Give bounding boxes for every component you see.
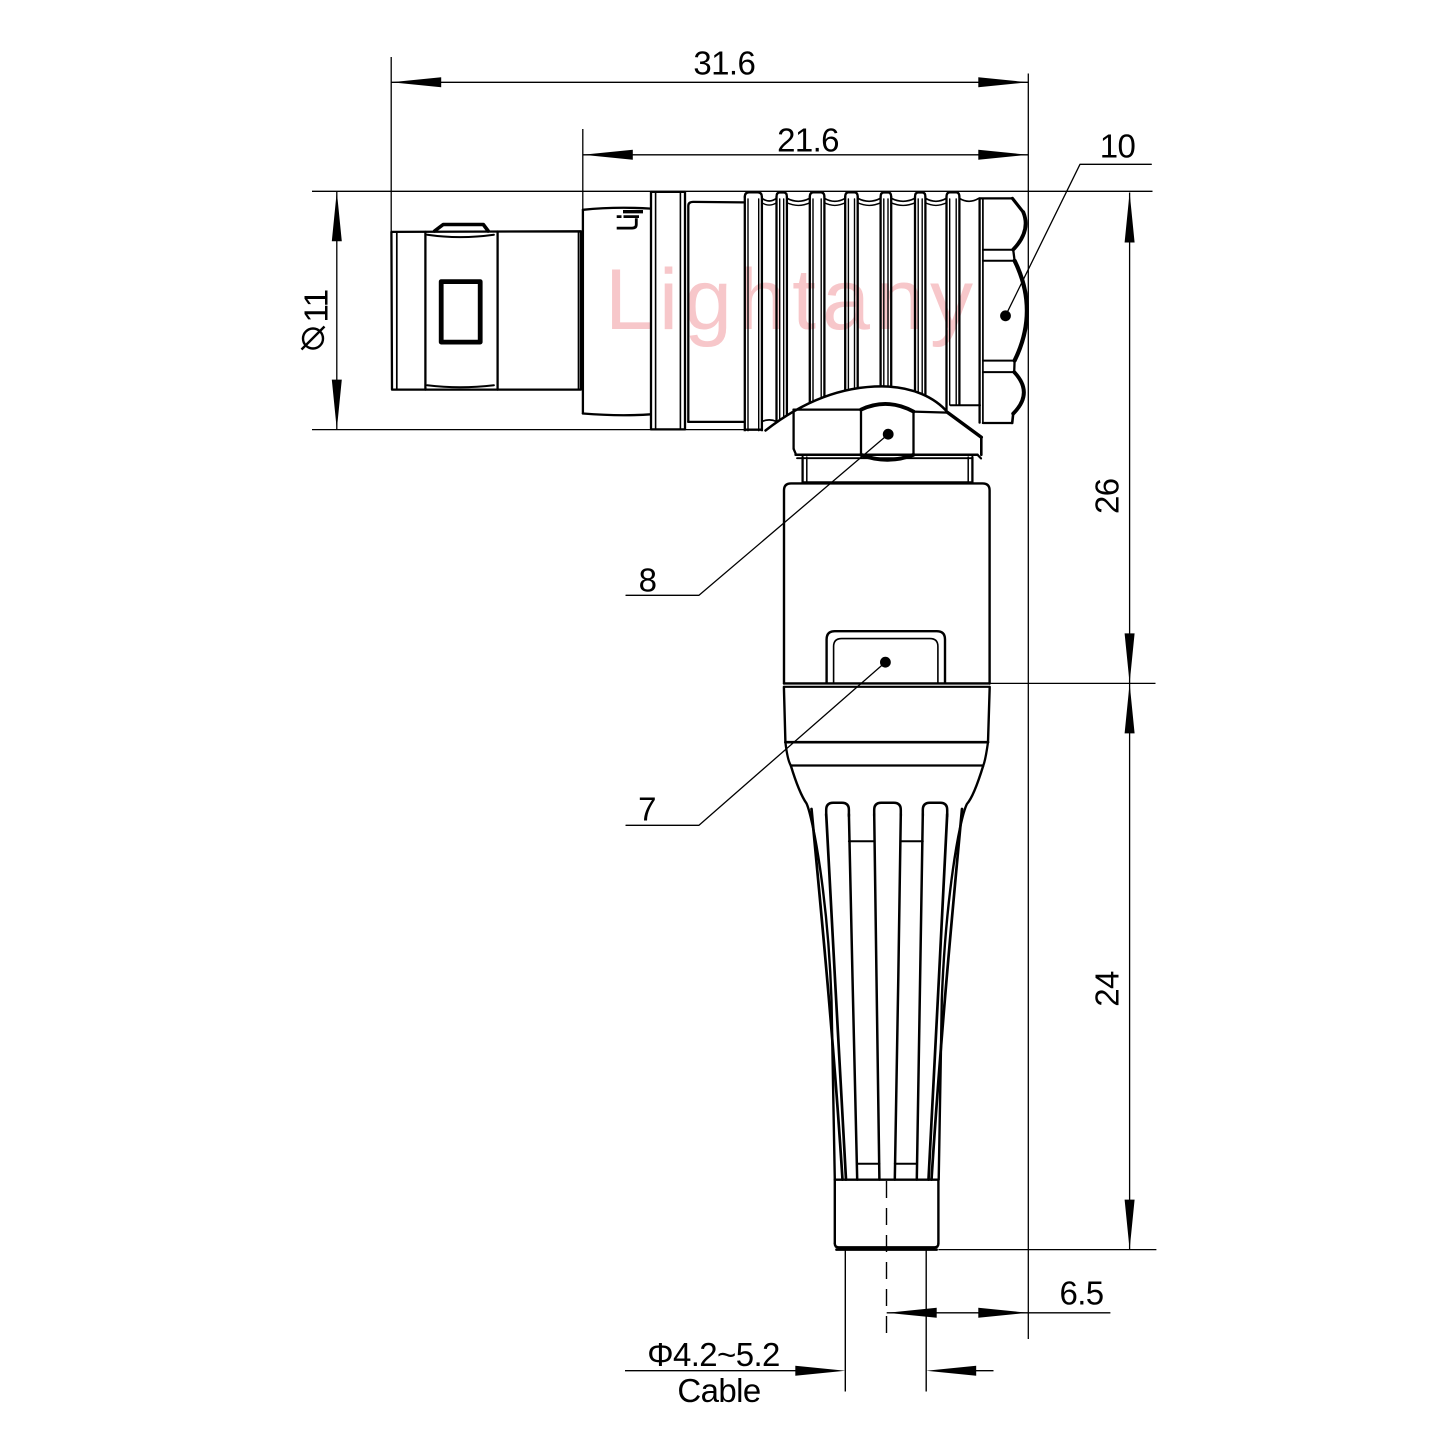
svg-text:31.6: 31.6 xyxy=(693,45,755,82)
svg-text:6.5: 6.5 xyxy=(1059,1275,1103,1312)
svg-text:24: 24 xyxy=(1089,971,1126,1007)
svg-text:8: 8 xyxy=(639,562,657,599)
svg-text:26: 26 xyxy=(1089,479,1126,515)
svg-text:11: 11 xyxy=(298,289,335,322)
svg-text:7: 7 xyxy=(638,791,656,828)
svg-text:Cable: Cable xyxy=(677,1372,760,1409)
svg-text:21.6: 21.6 xyxy=(777,122,839,159)
svg-text:10: 10 xyxy=(1100,128,1136,165)
svg-text:Φ4.2~5.2: Φ4.2~5.2 xyxy=(647,1336,780,1373)
